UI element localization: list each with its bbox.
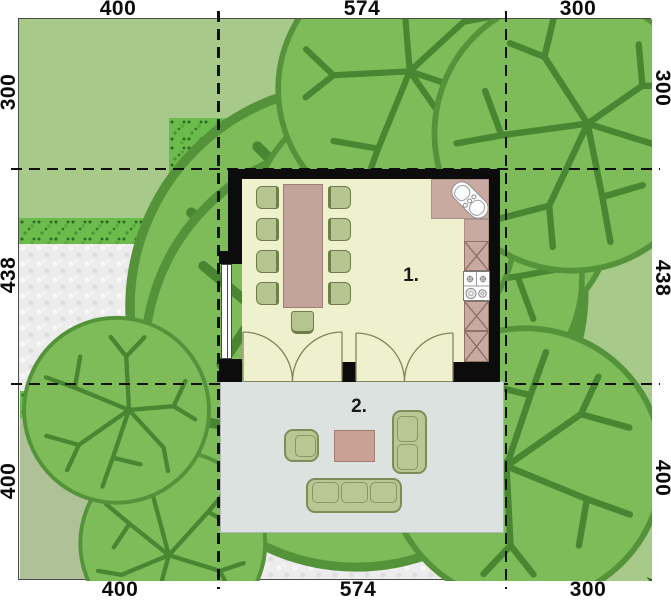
dimension-label-right-2: 438 (653, 248, 671, 308)
plan-area: 2. (18, 18, 651, 580)
terrace: 2. (220, 381, 504, 533)
dimension-label-right-1: 300 (653, 58, 671, 118)
dimension-label-left-2: 438 (0, 245, 18, 305)
dimension-label-bottom-1: 400 (90, 581, 150, 599)
dimension-label-bottom-2: 574 (328, 581, 388, 599)
loveseat (392, 410, 427, 474)
armchair (284, 429, 319, 462)
dimension-label-top-3: 300 (548, 0, 608, 18)
terrace-label: 2. (339, 396, 379, 418)
dashed-line-vertical-right (505, 11, 508, 589)
dimension-label-bottom-3: 300 (558, 581, 618, 599)
sofa (306, 478, 402, 513)
dimension-label-left-1: 300 (0, 62, 18, 122)
door-swing-arcs (219, 169, 500, 382)
dimension-label-left-3: 400 (0, 451, 18, 511)
building: 1. (219, 169, 500, 382)
dimension-label-right-3: 400 (653, 448, 671, 508)
site-plan: 2. (0, 0, 671, 600)
dimension-label-top-2: 574 (332, 0, 392, 18)
coffee-table (334, 430, 375, 462)
room-label: 1. (391, 265, 431, 287)
dimension-label-top-1: 400 (88, 0, 148, 18)
